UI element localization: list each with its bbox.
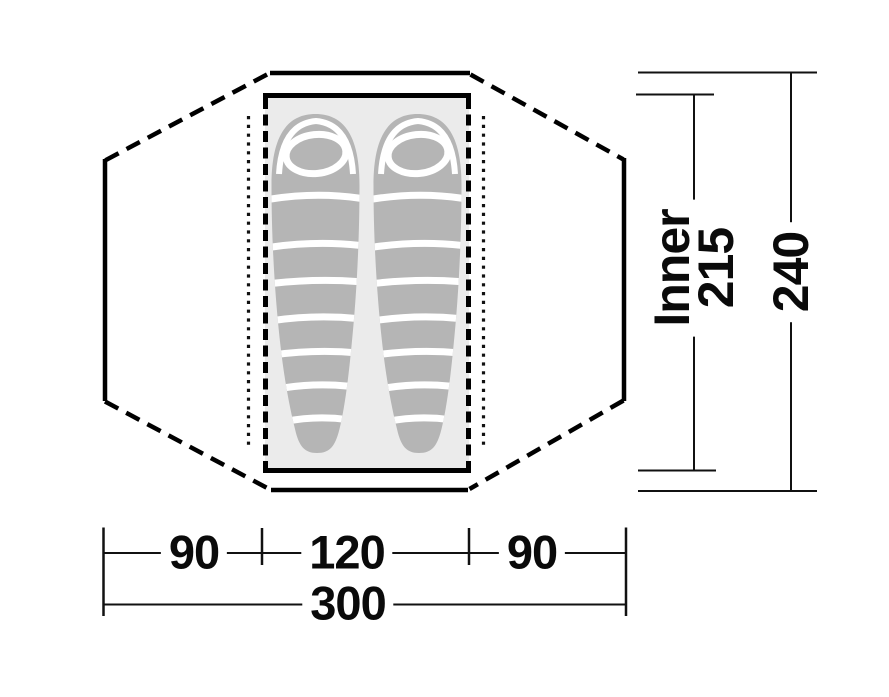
footprint-bottomleft-diagonal bbox=[105, 402, 270, 490]
footprint-topright-diagonal bbox=[471, 75, 624, 160]
tent-dimension-diagram: 90 120 90 300 Inner 215 240 bbox=[0, 0, 889, 697]
diagram-linework bbox=[0, 0, 889, 697]
dimension-label-90-left: 90 bbox=[161, 529, 227, 576]
footprint-topleft-diagonal bbox=[105, 75, 267, 161]
inner-length-value: 215 bbox=[694, 209, 738, 326]
dimension-label-120: 120 bbox=[301, 529, 392, 576]
dimension-label-240: 240 bbox=[765, 222, 817, 322]
dimension-label-90-right: 90 bbox=[499, 529, 565, 576]
dimension-label-300: 300 bbox=[302, 580, 393, 627]
dimension-label-inner-215: Inner 215 bbox=[646, 199, 742, 336]
footprint-bottomright-diagonal bbox=[470, 401, 624, 490]
